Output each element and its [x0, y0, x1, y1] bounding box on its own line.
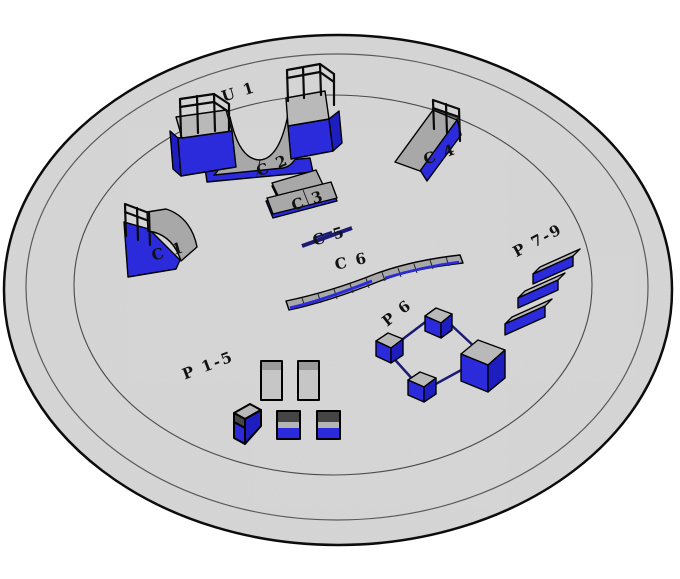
- scene-canvas: [0, 0, 680, 579]
- u1-right-deck: [286, 91, 329, 126]
- p1-tall-box-top-band: [262, 362, 281, 370]
- p4-cube-blue-band: [278, 428, 299, 438]
- 3d-viewport[interactable]: U 1 C 1 C 2 C 3 C 4 C 5 C 6 P 1-5 P 6 P …: [0, 0, 680, 579]
- p5-cube-gray-band: [318, 422, 339, 428]
- p5-cube-blue-band: [318, 428, 339, 438]
- p2-tall-box-top-band: [299, 362, 318, 370]
- p4-cube-gray-band: [278, 422, 299, 428]
